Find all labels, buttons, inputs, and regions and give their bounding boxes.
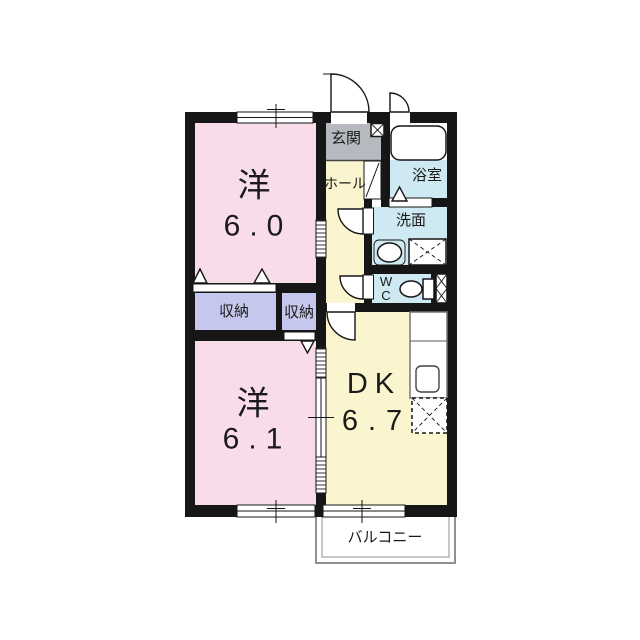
wall-washroom-wc <box>364 265 447 274</box>
room-west1-area: 6.0 <box>224 210 293 242</box>
room-west2-label: 洋 <box>237 387 270 422</box>
small-door-opening <box>390 111 410 124</box>
wc-door-opening <box>363 275 374 299</box>
kitchen-sink-icon <box>416 366 439 392</box>
bath-label: 浴室 <box>412 168 442 184</box>
room-dk-label: DK <box>347 369 401 399</box>
genkan-label: 玄関 <box>331 131 361 147</box>
room-west2-area: 6.1 <box>223 423 292 455</box>
entrance-door-swing <box>331 74 369 112</box>
closet-a-label: 収納 <box>219 304 249 320</box>
washroom-label: 洗面 <box>396 213 426 229</box>
washroom-door-opening <box>363 208 374 234</box>
bathtub-icon <box>391 126 446 160</box>
floorplan-drawing <box>0 0 640 640</box>
sink-basin-icon <box>378 243 402 262</box>
room-west1-label: 洋 <box>238 169 271 204</box>
toilet-tank-icon <box>423 279 434 299</box>
balcony-label: バルコニー <box>348 530 423 546</box>
sliding-panel-lower <box>316 457 326 493</box>
closet-a-door <box>193 284 276 292</box>
wall-right <box>447 112 457 517</box>
dk-door-opening <box>327 303 355 312</box>
closet-b-door <box>284 332 315 340</box>
floorplan: 洋 6.0 洋 6.1 DK 6.7 玄関 ホール 浴室 洗面 W C 収納 収… <box>0 0 640 640</box>
small-door-swing <box>390 93 409 112</box>
toilet-bowl-icon <box>400 281 422 297</box>
wall-left <box>185 112 195 517</box>
pipe-space-icon <box>436 274 447 303</box>
sliding-door-west1 <box>316 220 326 258</box>
entrance-opening <box>331 111 367 124</box>
wc-label: W C <box>380 275 392 303</box>
sliding-panel-upper <box>316 348 326 378</box>
wall-bottom <box>185 505 457 517</box>
closet-b-label: 収納 <box>284 305 314 321</box>
hall-label: ホール <box>324 177 366 192</box>
room-dk-area: 6.7 <box>342 406 412 436</box>
